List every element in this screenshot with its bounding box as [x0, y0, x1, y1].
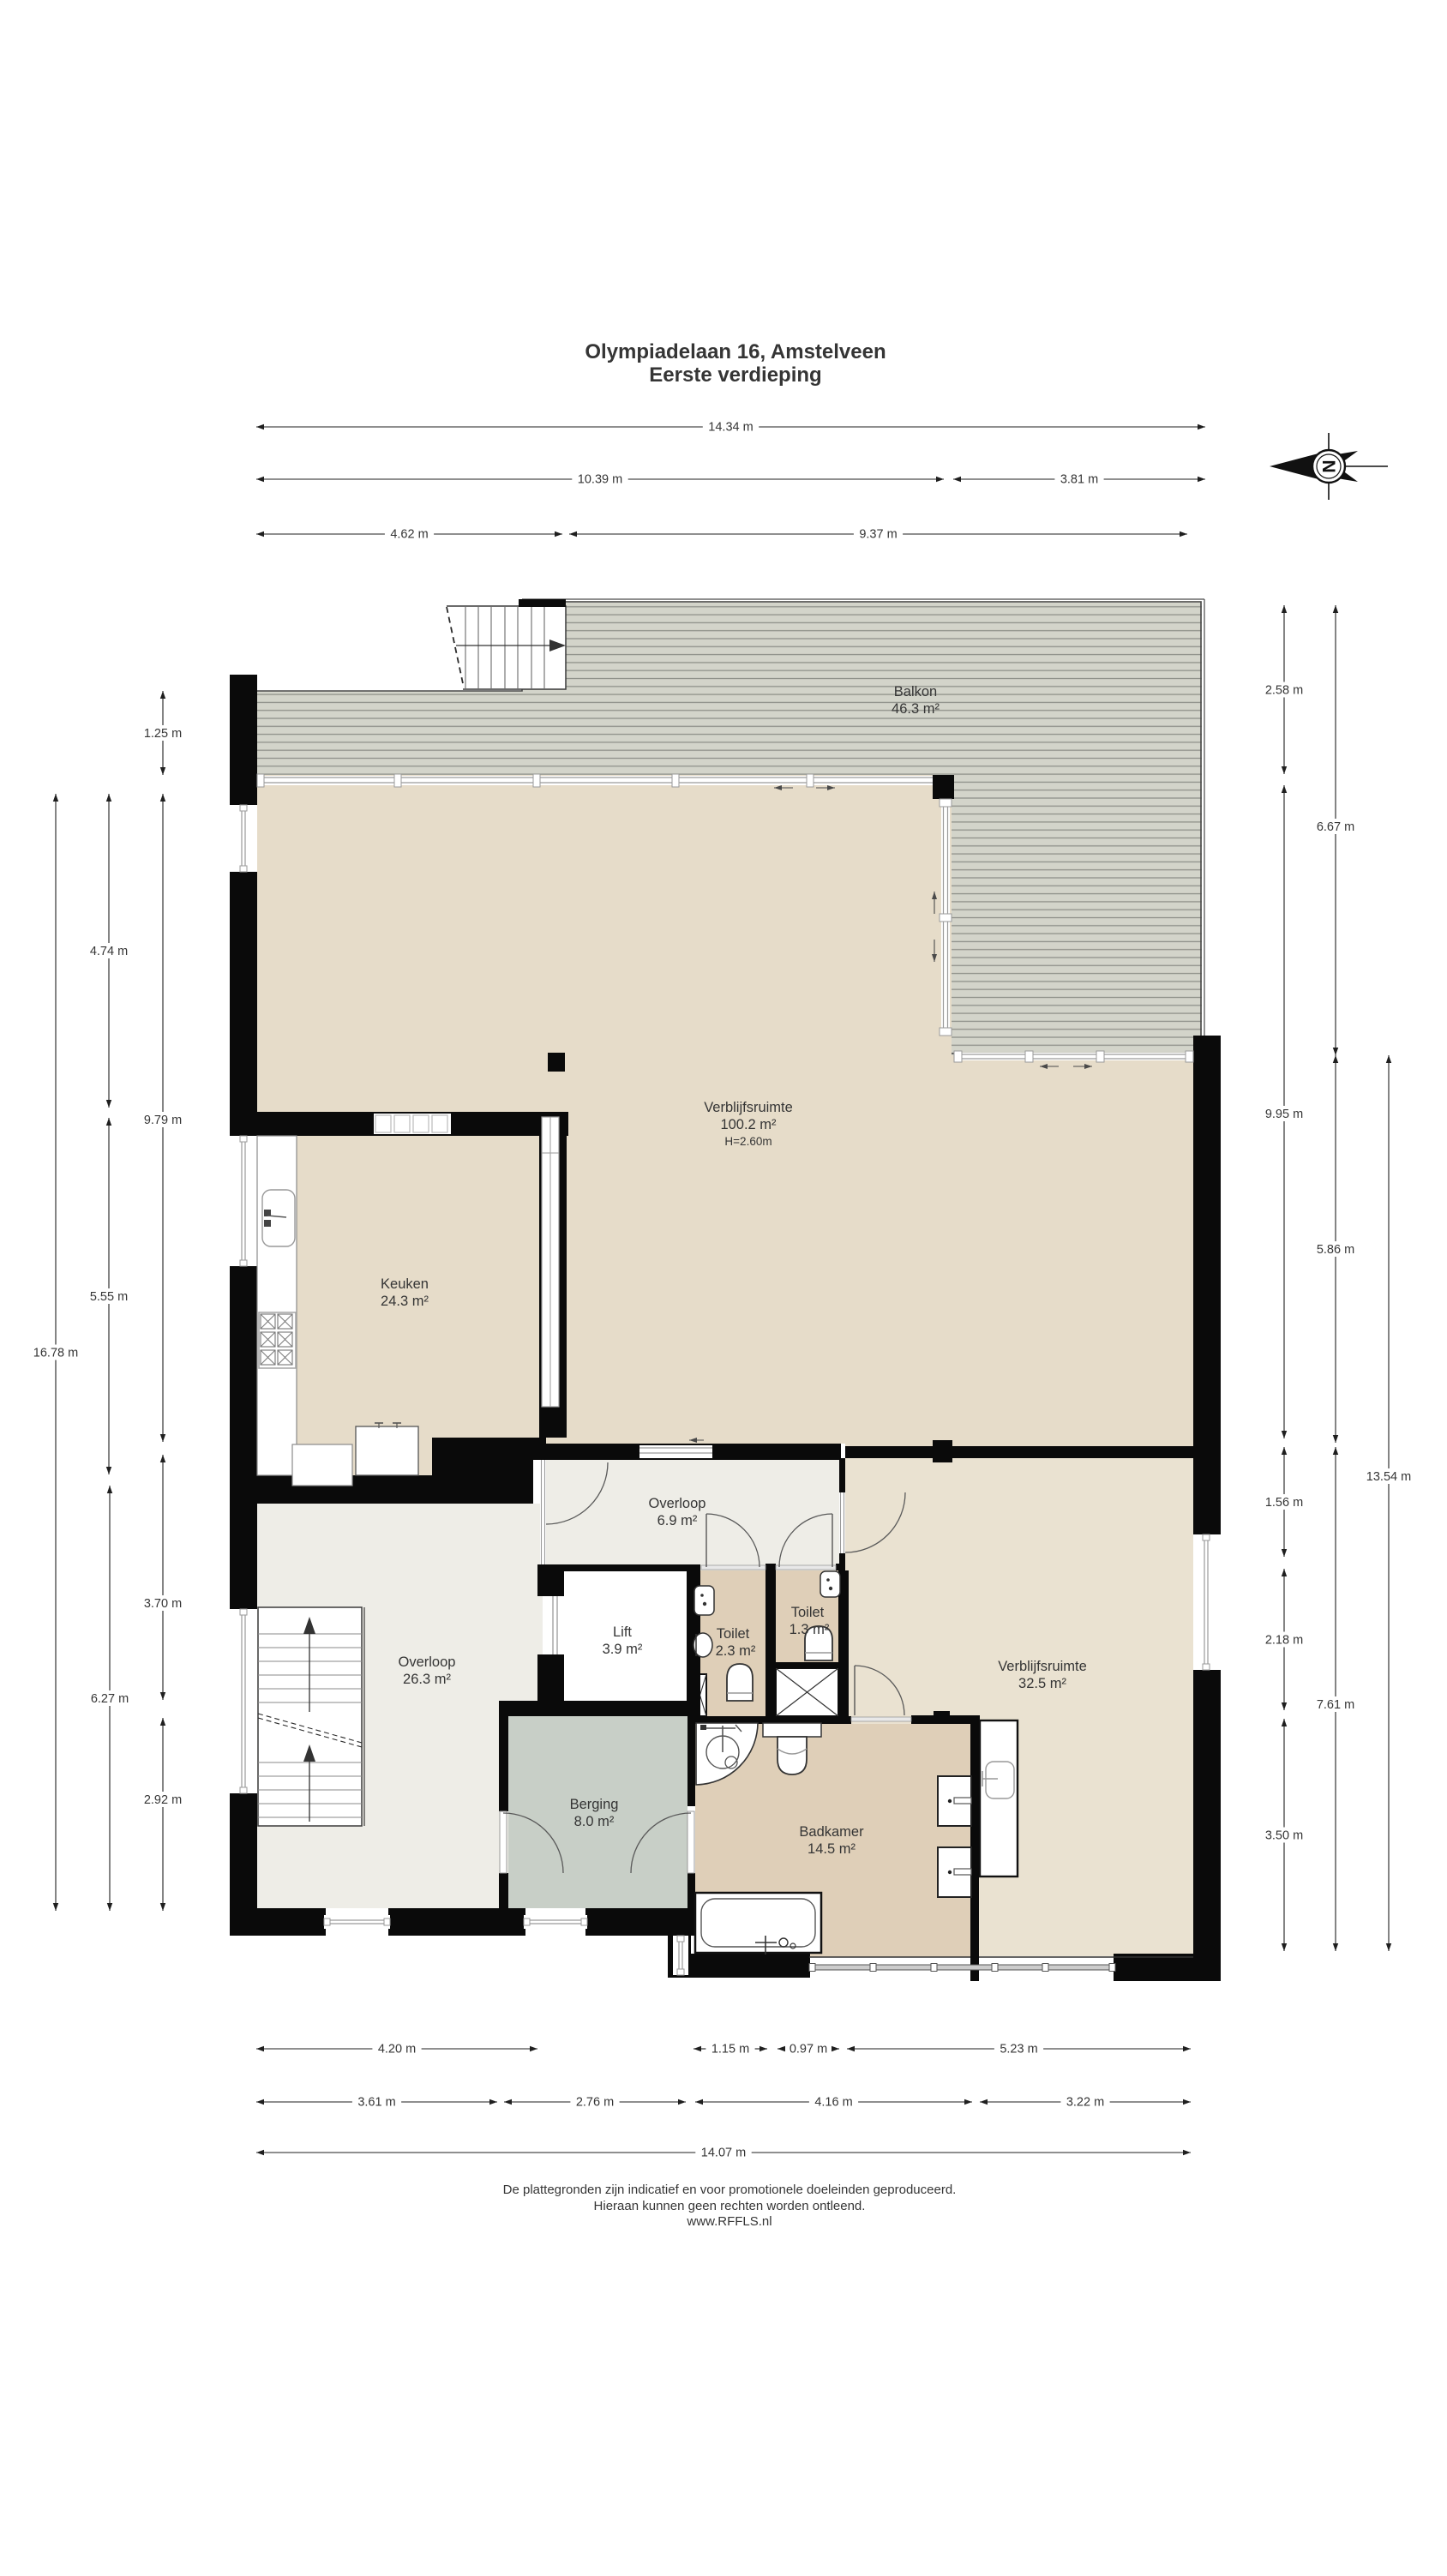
- svg-text:13.54 m: 13.54 m: [1366, 1470, 1411, 1484]
- svg-text:De plattegronden zijn indicati: De plattegronden zijn indicatief en voor…: [503, 2183, 957, 2197]
- svg-text:9.95 m: 9.95 m: [1265, 1108, 1303, 1121]
- svg-text:Lift: Lift: [613, 1624, 632, 1640]
- svg-text:Hieraan kunnen geen rechten wo: Hieraan kunnen geen rechten worden ontle…: [594, 2199, 866, 2213]
- svg-text:0.97 m: 0.97 m: [790, 2043, 827, 2057]
- svg-text:5.55 m: 5.55 m: [90, 1290, 128, 1304]
- svg-text:Overloop: Overloop: [399, 1654, 456, 1670]
- svg-text:6.27 m: 6.27 m: [91, 1692, 129, 1706]
- svg-text:6.9 m²: 6.9 m²: [657, 1513, 698, 1528]
- svg-text:H=2.60m: H=2.60m: [724, 1135, 772, 1148]
- svg-text:7.61 m: 7.61 m: [1317, 1698, 1354, 1712]
- svg-text:3.61 m: 3.61 m: [357, 2096, 395, 2110]
- svg-text:1.25 m: 1.25 m: [144, 727, 182, 741]
- svg-text:Toilet: Toilet: [791, 1605, 825, 1620]
- svg-text:14.07 m: 14.07 m: [701, 2147, 746, 2160]
- svg-text:Overloop: Overloop: [649, 1496, 706, 1511]
- svg-text:3.50 m: 3.50 m: [1265, 1829, 1303, 1843]
- svg-text:3.81 m: 3.81 m: [1060, 473, 1098, 487]
- svg-text:2.58 m: 2.58 m: [1265, 684, 1303, 698]
- svg-text:Keuken: Keuken: [381, 1276, 429, 1292]
- svg-text:Verblijfsruimte: Verblijfsruimte: [704, 1100, 793, 1115]
- svg-text:2.18 m: 2.18 m: [1265, 1634, 1303, 1648]
- svg-text:3.22 m: 3.22 m: [1066, 2096, 1104, 2110]
- svg-text:100.2 m²: 100.2 m²: [720, 1117, 777, 1132]
- svg-text:Olympiadelaan 16, Amstelveen: Olympiadelaan 16, Amstelveen: [585, 340, 886, 363]
- svg-text:8.0 m²: 8.0 m²: [574, 1814, 615, 1829]
- svg-text:10.39 m: 10.39 m: [578, 473, 622, 487]
- svg-text:14.34 m: 14.34 m: [708, 421, 753, 435]
- svg-text:4.74 m: 4.74 m: [90, 945, 128, 958]
- svg-text:24.3 m²: 24.3 m²: [381, 1294, 429, 1309]
- svg-text:Toilet: Toilet: [717, 1626, 750, 1642]
- svg-text:5.86 m: 5.86 m: [1317, 1243, 1354, 1257]
- svg-text:Eerste verdieping: Eerste verdieping: [649, 363, 821, 387]
- svg-text:16.78 m: 16.78 m: [33, 1347, 78, 1360]
- svg-text:N: N: [1320, 459, 1340, 472]
- svg-text:Balkon: Balkon: [894, 684, 937, 700]
- svg-text:32.5 m²: 32.5 m²: [1018, 1676, 1066, 1691]
- svg-text:Badkamer: Badkamer: [799, 1824, 864, 1840]
- svg-text:5.23 m: 5.23 m: [1000, 2043, 1037, 2057]
- svg-text:1.15 m: 1.15 m: [711, 2043, 749, 2057]
- svg-text:2.92 m: 2.92 m: [144, 1793, 182, 1807]
- svg-text:Verblijfsruimte: Verblijfsruimte: [998, 1659, 1087, 1674]
- svg-text:9.79 m: 9.79 m: [144, 1114, 182, 1127]
- svg-text:3.70 m: 3.70 m: [144, 1597, 182, 1611]
- svg-text:2.3 m²: 2.3 m²: [716, 1643, 756, 1659]
- svg-text:1.3 m²: 1.3 m²: [790, 1622, 830, 1637]
- svg-text:26.3 m²: 26.3 m²: [403, 1672, 451, 1687]
- svg-text:1.56 m: 1.56 m: [1265, 1496, 1303, 1510]
- svg-text:Berging: Berging: [570, 1797, 619, 1812]
- svg-text:3.9 m²: 3.9 m²: [603, 1642, 643, 1657]
- svg-text:4.20 m: 4.20 m: [378, 2043, 416, 2057]
- svg-text:46.3 m²: 46.3 m²: [892, 701, 940, 717]
- svg-text:9.37 m: 9.37 m: [859, 528, 897, 542]
- svg-text:4.62 m: 4.62 m: [390, 528, 428, 542]
- svg-text:www.RFFLS.nl: www.RFFLS.nl: [686, 2214, 772, 2229]
- svg-text:14.5 m²: 14.5 m²: [808, 1841, 856, 1857]
- svg-text:4.16 m: 4.16 m: [814, 2096, 852, 2110]
- svg-text:6.67 m: 6.67 m: [1317, 820, 1354, 834]
- svg-text:2.76 m: 2.76 m: [576, 2096, 614, 2110]
